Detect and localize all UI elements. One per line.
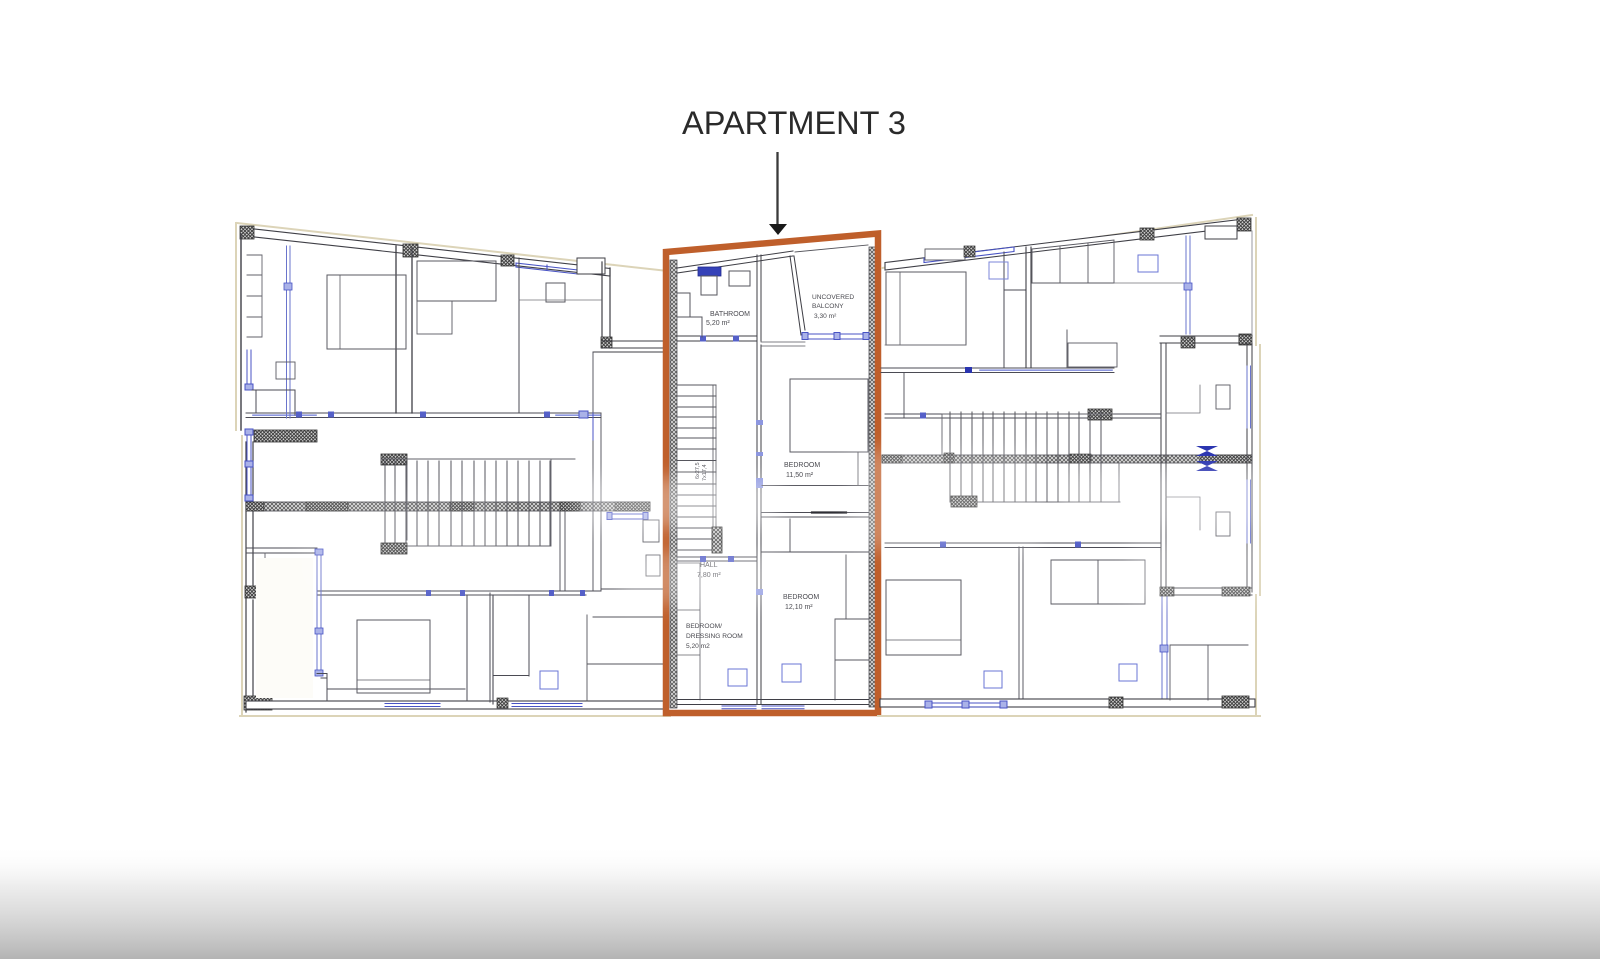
svg-text:APARTMENT 3: APARTMENT 3 (682, 105, 906, 141)
svg-text:DRESSING ROOM: DRESSING ROOM (686, 633, 743, 640)
svg-text:11,50 m²: 11,50 m² (786, 472, 814, 479)
svg-text:BEDROOM/: BEDROOM/ (686, 623, 722, 630)
svg-text:BATHROOM: BATHROOM (710, 311, 750, 318)
svg-text:5,20 m²: 5,20 m² (706, 320, 730, 327)
svg-text:5,20 m2: 5,20 m2 (686, 643, 710, 650)
svg-text:BALCONY: BALCONY (812, 303, 844, 310)
svg-text:12,10 m²: 12,10 m² (785, 604, 813, 611)
svg-text:UNCOVERED: UNCOVERED (812, 294, 854, 301)
svg-text:BEDROOM: BEDROOM (783, 594, 819, 601)
svg-text:BEDROOM: BEDROOM (784, 462, 820, 469)
svg-text:6x27,5: 6x27,5 (695, 462, 701, 479)
svg-text:3,30 m²: 3,30 m² (814, 313, 837, 320)
